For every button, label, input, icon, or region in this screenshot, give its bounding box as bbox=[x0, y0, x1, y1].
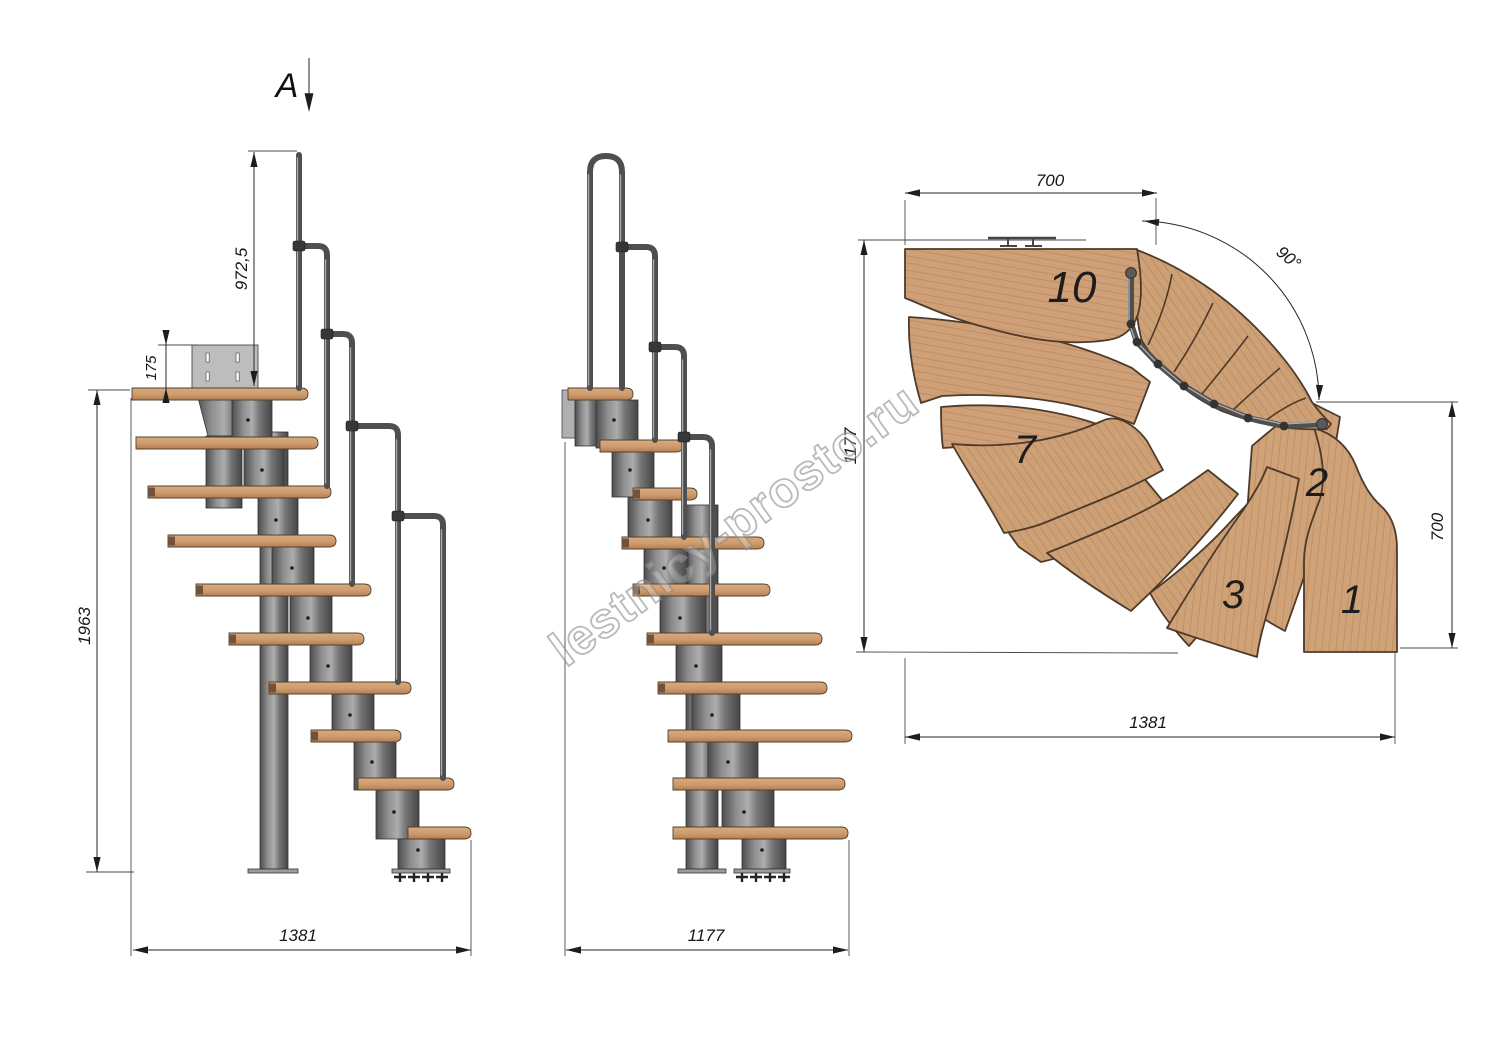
tread bbox=[269, 682, 411, 694]
dim-text: 1177 bbox=[688, 926, 725, 945]
plan-mounting-plate bbox=[988, 238, 1056, 247]
corner-fan bbox=[1134, 250, 1331, 429]
dim-text: 175 bbox=[143, 355, 160, 381]
tread bbox=[358, 778, 454, 790]
dim-text: 972,5 bbox=[232, 247, 251, 290]
step-number-3: 3 bbox=[1222, 573, 1244, 617]
step-number-7: 7 bbox=[1014, 428, 1038, 472]
rail-end bbox=[1317, 419, 1328, 430]
side-support-structure bbox=[192, 345, 450, 882]
tread bbox=[408, 827, 471, 839]
tread bbox=[673, 778, 845, 790]
drawing-sheet: A 972,5 175 bbox=[0, 0, 1500, 1061]
rail-clamp bbox=[321, 329, 333, 339]
tread bbox=[668, 730, 852, 742]
tread bbox=[600, 440, 683, 452]
dim-plan-bottom-length: 1381 bbox=[905, 652, 1395, 744]
section-label: A bbox=[274, 67, 299, 105]
base-plate bbox=[392, 869, 450, 873]
tread bbox=[136, 437, 318, 449]
step-number-1: 1 bbox=[1341, 578, 1363, 622]
section-marker: A bbox=[274, 58, 314, 112]
rail-clamp bbox=[649, 342, 661, 352]
base-plate bbox=[734, 869, 790, 873]
tread bbox=[148, 486, 331, 498]
step-number-10: 10 bbox=[1048, 263, 1097, 312]
base-plate bbox=[248, 869, 298, 873]
side-view: A 972,5 175 bbox=[75, 58, 471, 956]
tread bbox=[311, 730, 401, 742]
tread bbox=[673, 827, 848, 839]
dim-text: 1381 bbox=[1129, 713, 1167, 732]
tread bbox=[229, 633, 364, 645]
rail-end bbox=[1126, 268, 1137, 279]
tread bbox=[647, 633, 822, 645]
bracket-block bbox=[575, 394, 599, 446]
tread bbox=[658, 682, 827, 694]
dim-total-height: 1963 bbox=[75, 390, 134, 872]
rail-clamp bbox=[616, 242, 628, 252]
plan-treads bbox=[905, 249, 1397, 657]
dim-plan-top-width: 700 bbox=[905, 171, 1157, 245]
dim-text: 700 bbox=[1036, 171, 1065, 190]
dim-text: 1381 bbox=[279, 926, 317, 945]
anchor-bolts bbox=[394, 873, 448, 882]
base-plate bbox=[678, 869, 726, 873]
tread bbox=[633, 488, 697, 500]
mounting-plate bbox=[192, 345, 258, 388]
dim-text: 700 bbox=[1428, 512, 1447, 541]
plan-view: 10 7 2 3 1 700 90° bbox=[841, 171, 1458, 744]
rail-clamp bbox=[293, 241, 305, 251]
anchor-bolts bbox=[736, 873, 790, 882]
staircase-drawing: A 972,5 175 bbox=[0, 0, 1500, 1061]
tread bbox=[196, 584, 371, 596]
tread bbox=[168, 535, 336, 547]
section-arrow bbox=[305, 93, 314, 112]
rail-clamp bbox=[392, 511, 404, 521]
dim-text: 90° bbox=[1273, 242, 1305, 273]
step-number-2: 2 bbox=[1305, 461, 1328, 505]
rail-clamp bbox=[346, 421, 358, 431]
tread bbox=[132, 388, 308, 400]
rail-clamp bbox=[678, 432, 690, 442]
dim-text: 1963 bbox=[75, 607, 94, 645]
